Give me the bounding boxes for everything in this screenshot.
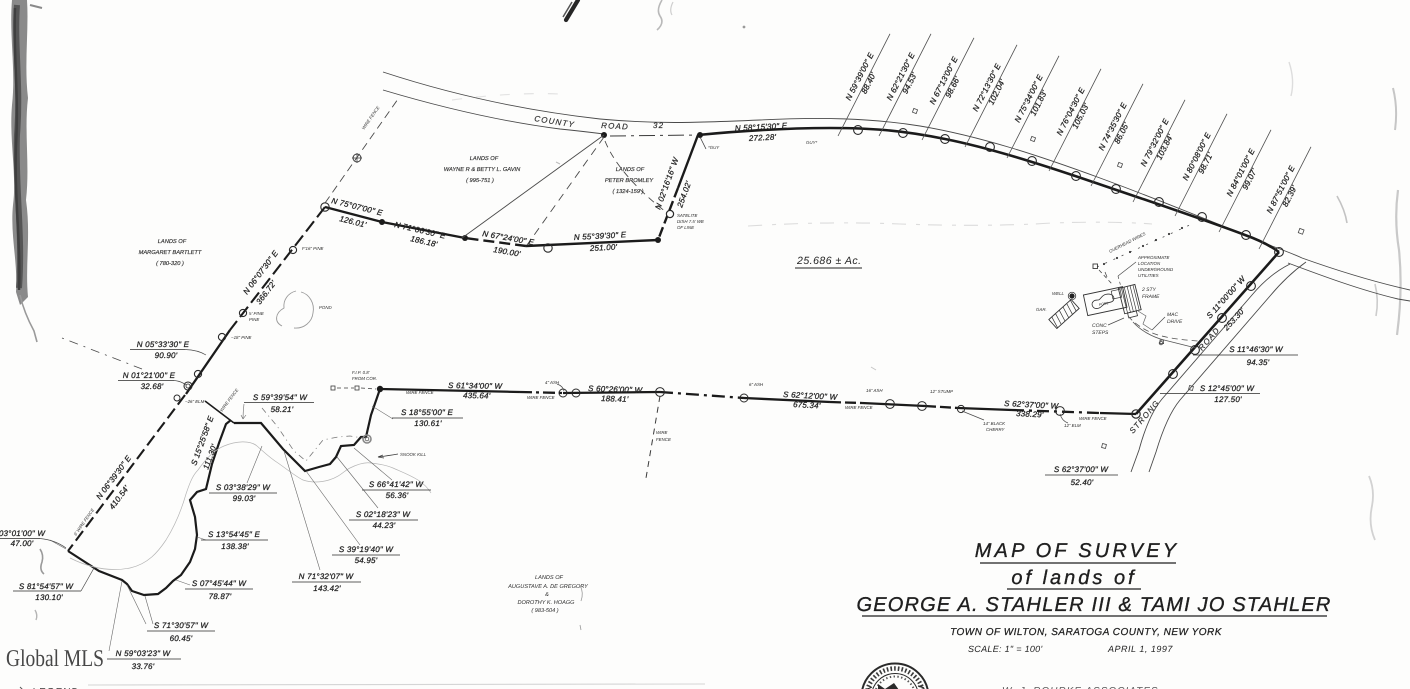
svg-text:52.40': 52.40': [1071, 478, 1094, 487]
svg-text:GAR.: GAR.: [1036, 307, 1047, 312]
svg-text:47.00': 47.00': [11, 539, 34, 548]
svg-text:SATELITE: SATELITE: [677, 213, 697, 218]
svg-text:56.36': 56.36': [386, 491, 409, 500]
svg-text:03°01'00" W: 03°01'00" W: [0, 529, 46, 538]
svg-text:675.34': 675.34': [793, 400, 821, 410]
svg-text:DOROTHY K. HOAGG: DOROTHY K. HOAGG: [517, 600, 575, 606]
svg-text:N 59°03'23" W: N 59°03'23" W: [116, 649, 172, 658]
svg-text:WIRE: WIRE: [656, 430, 668, 435]
svg-text:SCALE: 1" = 100': SCALE: 1" = 100': [968, 644, 1043, 654]
svg-text:FENCE: FENCE: [656, 437, 671, 442]
svg-text:S 39°19'40" W: S 39°19'40" W: [339, 545, 394, 554]
svg-text:SNOOK KILL: SNOOK KILL: [400, 452, 427, 457]
svg-text:435.64': 435.64': [463, 391, 491, 400]
svg-text:LANDS OF: LANDS OF: [470, 156, 499, 162]
svg-text:UNDERGROUND: UNDERGROUND: [1138, 267, 1174, 272]
svg-text:( 1324-159 ): ( 1324-159 ): [613, 188, 644, 195]
svg-text:S 71°30'57" W: S 71°30'57" W: [154, 621, 209, 630]
svg-text:FRAME: FRAME: [1142, 294, 1160, 300]
svg-text:CONC: CONC: [1092, 323, 1107, 329]
svg-text:STEPS: STEPS: [1092, 330, 1109, 336]
svg-text:&: &: [545, 592, 549, 598]
svg-text:90.90': 90.90': [155, 351, 178, 360]
svg-text:130.10': 130.10': [35, 593, 63, 602]
svg-text:12" STUMP: 12" STUMP: [930, 389, 953, 394]
svg-text:WIRE FENCE: WIRE FENCE: [845, 405, 873, 410]
svg-text:MAC: MAC: [1167, 312, 1179, 318]
svg-text:188.41': 188.41': [601, 394, 629, 404]
svg-text:WELL: WELL: [1052, 291, 1065, 296]
svg-text:MAP OF SURVEY: MAP OF SURVEY: [975, 540, 1180, 562]
svg-text:60.45': 60.45': [170, 634, 193, 643]
svg-text:25.686 ± Ac.: 25.686 ± Ac.: [796, 255, 862, 267]
svg-text:( 995-751 ): ( 995-751 ): [466, 177, 494, 184]
svg-text:~26" ELM: ~26" ELM: [185, 399, 205, 404]
svg-text:251.00': 251.00': [589, 243, 618, 253]
svg-text:ROAD: ROAD: [601, 121, 629, 131]
svg-text:S 12°45'00" W: S 12°45'00" W: [1200, 384, 1255, 393]
svg-text:POND: POND: [319, 305, 333, 310]
svg-text:99.03': 99.03': [233, 494, 256, 503]
svg-text:16" ASH: 16" ASH: [866, 388, 883, 393]
svg-text:12" ELM: 12" ELM: [1064, 423, 1081, 428]
svg-text:94.35': 94.35': [1247, 358, 1270, 367]
svg-text:LANDS OF: LANDS OF: [158, 239, 187, 245]
svg-text:LANDS OF: LANDS OF: [616, 167, 645, 173]
svg-text:78.87': 78.87': [209, 592, 232, 601]
svg-text:AUGUSTAVE A. DE GREGORY: AUGUSTAVE A. DE GREGORY: [507, 584, 589, 590]
svg-text:4" ASH: 4" ASH: [545, 380, 560, 385]
svg-text:S 13°54'45" E: S 13°54'45" E: [208, 530, 260, 539]
svg-text:F'16" PINE: F'16" PINE: [302, 246, 324, 251]
svg-text:S 66°41'42" W: S 66°41'42" W: [369, 480, 424, 489]
svg-text:N 05°33'30" E: N 05°33'30" E: [137, 340, 190, 349]
svg-text:APPROXIMATE: APPROXIMATE: [1137, 255, 1169, 260]
svg-text:PINE: PINE: [249, 317, 259, 322]
svg-text:338.29': 338.29': [1016, 409, 1044, 419]
svg-text:UTILITIES: UTILITIES: [1138, 273, 1159, 278]
svg-text:S 18°55'00" E: S 18°55'00" E: [401, 408, 453, 417]
svg-text:N 01°21'00" E: N 01°21'00" E: [123, 371, 176, 380]
svg-text:S 03°38'29" W: S 03°38'29" W: [216, 483, 271, 492]
svg-text:LANDS OF: LANDS OF: [535, 575, 564, 581]
svg-text:DISH 7.5' WE: DISH 7.5' WE: [677, 219, 704, 224]
svg-text:PETER BROMLEY: PETER BROMLEY: [605, 178, 655, 184]
svg-text:CHERRY: CHERRY: [986, 427, 1005, 432]
svg-text:N 71°32'07" W: N 71°32'07" W: [299, 572, 355, 581]
svg-text:TOWN OF WILTON, SARATOGA COUN: TOWN OF WILTON, SARATOGA COUNTY, NEW YOR…: [950, 627, 1223, 638]
svg-text:GEORGE A. STAHLER III & TAMI J: GEORGE A. STAHLER III & TAMI JO STAHLER: [856, 594, 1331, 616]
svg-text:LOCATION: LOCATION: [1138, 261, 1161, 266]
svg-text:S 61°34'00" W: S 61°34'00" W: [448, 381, 504, 391]
svg-text:32: 32: [653, 121, 664, 130]
svg-text:Global MLS: Global MLS: [6, 646, 104, 672]
svg-text:OF LINE: OF LINE: [677, 225, 694, 230]
svg-text:54.95': 54.95': [355, 556, 378, 565]
svg-text:WAYNE R & BETTY L. GAVIN: WAYNE R & BETTY L. GAVIN: [444, 167, 521, 173]
svg-text:127.50': 127.50': [1214, 395, 1242, 404]
svg-text:S 11°46'30" W: S 11°46'30" W: [1229, 345, 1284, 354]
svg-text:58.21': 58.21': [271, 405, 294, 414]
svg-text:~18" PINE: ~18" PINE: [231, 335, 252, 340]
svg-text:( 983-504 ): ( 983-504 ): [531, 607, 558, 614]
svg-text:FROM COR.: FROM COR.: [352, 376, 377, 381]
svg-text:F.I.P. 0.8': F.I.P. 0.8': [352, 370, 370, 375]
svg-text:44.23': 44.23': [373, 521, 396, 530]
svg-text:( 780-320 ): ( 780-320 ): [156, 260, 184, 267]
svg-text:33.76': 33.76': [132, 662, 155, 671]
svg-text:2 STY: 2 STY: [1141, 287, 1157, 293]
svg-text:DRIVE: DRIVE: [1167, 319, 1183, 325]
svg-text:GUY*: GUY*: [806, 140, 818, 145]
svg-text:6" ASH: 6" ASH: [749, 382, 764, 387]
svg-text:S 07°45'44" W: S 07°45'44" W: [192, 579, 247, 588]
svg-text:WIRE FENCE: WIRE FENCE: [1079, 416, 1107, 421]
svg-text:WIRE FENCE: WIRE FENCE: [527, 395, 555, 400]
svg-text:14" BLACK: 14" BLACK: [983, 421, 1006, 426]
svg-text:*GUY: *GUY: [708, 145, 720, 150]
svg-text:5' PINE: 5' PINE: [249, 311, 264, 316]
svg-text:S 02°18'23" W: S 02°18'23" W: [356, 510, 411, 519]
svg-text:272.28': 272.28': [748, 133, 777, 143]
svg-text:32.68': 32.68': [141, 382, 164, 391]
svg-text:S 81°54'57" W: S 81°54'57" W: [19, 582, 74, 591]
svg-text:of lands of: of lands of: [1011, 567, 1136, 589]
svg-text:143.42': 143.42': [313, 584, 341, 593]
svg-text:MARGARET BARTLETT: MARGARET BARTLETT: [139, 250, 202, 256]
svg-text:S 62°37'00" W: S 62°37'00" W: [1054, 465, 1109, 474]
svg-text:130.61': 130.61': [414, 419, 442, 428]
svg-text:APRIL 1, 1997: APRIL 1, 1997: [1107, 644, 1173, 654]
svg-text:S 59°39'54" W: S 59°39'54" W: [253, 393, 308, 402]
svg-text:WIRE FENCE: WIRE FENCE: [406, 390, 434, 395]
svg-text:138.38': 138.38': [221, 542, 249, 551]
